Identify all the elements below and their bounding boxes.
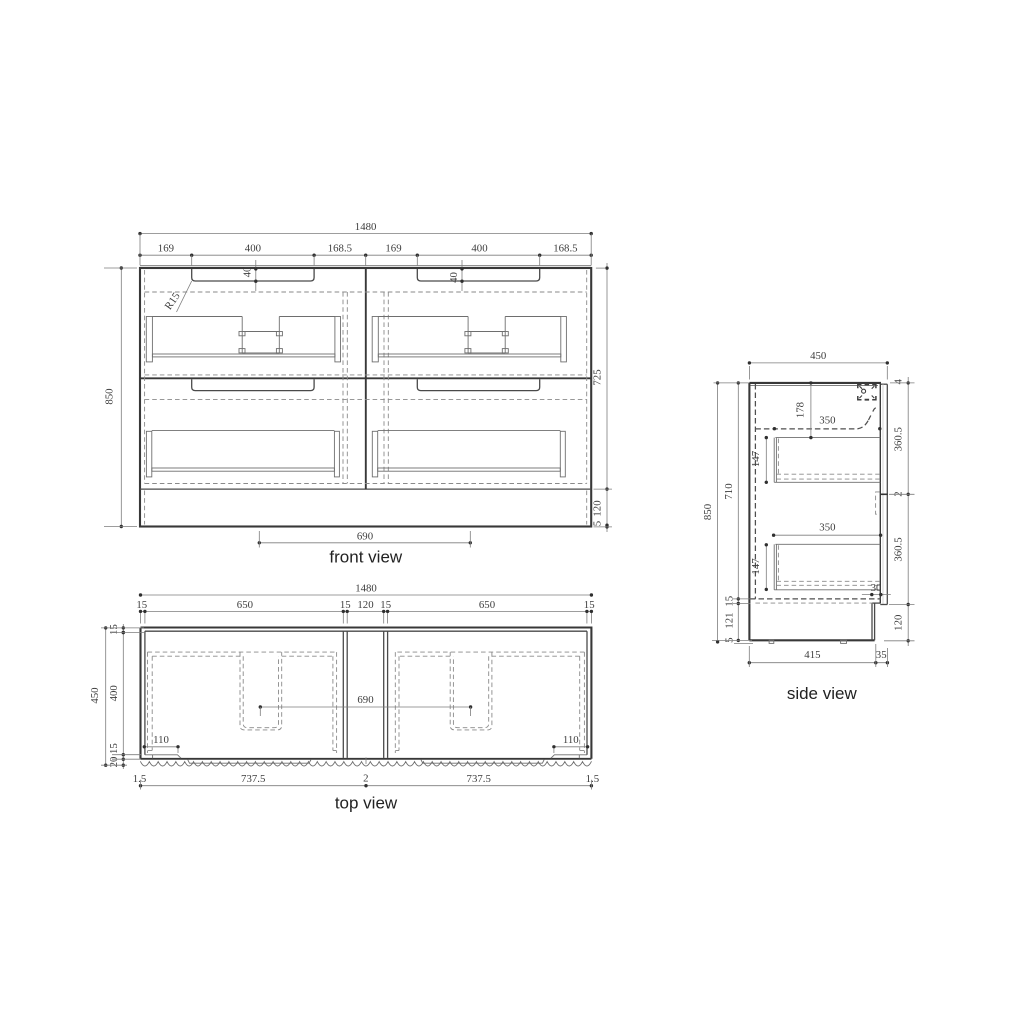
- svg-text:650: 650: [479, 599, 495, 611]
- svg-text:15: 15: [108, 624, 120, 635]
- svg-text:350: 350: [819, 522, 835, 534]
- svg-text:120: 120: [893, 615, 905, 631]
- svg-text:1480: 1480: [355, 582, 377, 594]
- svg-text:169: 169: [385, 243, 401, 255]
- svg-text:15: 15: [724, 596, 736, 607]
- svg-text:35: 35: [876, 649, 887, 661]
- svg-text:169: 169: [158, 243, 174, 255]
- svg-text:15: 15: [380, 599, 391, 611]
- svg-text:15: 15: [136, 599, 147, 611]
- svg-text:737.5: 737.5: [241, 773, 265, 785]
- svg-text:850: 850: [702, 504, 714, 520]
- svg-text:650: 650: [237, 599, 253, 611]
- svg-text:121: 121: [724, 612, 736, 628]
- svg-text:1.5: 1.5: [133, 773, 147, 785]
- svg-text:168.5: 168.5: [328, 243, 352, 255]
- svg-text:20: 20: [108, 757, 120, 768]
- svg-text:690: 690: [357, 531, 373, 543]
- svg-text:15: 15: [584, 599, 595, 611]
- svg-text:400: 400: [108, 685, 120, 701]
- svg-text:15: 15: [108, 743, 120, 754]
- svg-text:110: 110: [153, 734, 169, 746]
- svg-text:15: 15: [340, 599, 351, 611]
- svg-text:350: 350: [819, 415, 835, 427]
- svg-text:178: 178: [795, 402, 807, 418]
- svg-text:40: 40: [242, 267, 254, 278]
- svg-text:450: 450: [89, 687, 101, 703]
- svg-text:168.5: 168.5: [553, 243, 577, 255]
- svg-text:360.5: 360.5: [893, 427, 905, 451]
- svg-text:400: 400: [471, 243, 487, 255]
- svg-text:1480: 1480: [355, 221, 377, 233]
- svg-text:40: 40: [448, 272, 460, 283]
- svg-text:30: 30: [871, 582, 882, 594]
- svg-text:737.5: 737.5: [467, 773, 491, 785]
- svg-text:side view: side view: [787, 684, 858, 703]
- svg-text:147: 147: [750, 558, 762, 575]
- svg-text:120: 120: [357, 599, 373, 611]
- svg-text:400: 400: [245, 243, 261, 255]
- svg-text:110: 110: [563, 734, 579, 746]
- svg-text:147: 147: [750, 450, 762, 467]
- svg-text:top view: top view: [335, 794, 398, 813]
- svg-text:710: 710: [723, 483, 735, 499]
- svg-text:415: 415: [804, 649, 820, 661]
- svg-text:850: 850: [104, 388, 116, 404]
- svg-text:360.5: 360.5: [893, 537, 905, 561]
- svg-text:2: 2: [363, 773, 368, 785]
- svg-text:725: 725: [591, 369, 603, 385]
- svg-text:front view: front view: [329, 548, 402, 567]
- svg-text:4: 4: [893, 379, 905, 385]
- svg-text:690: 690: [357, 694, 373, 706]
- svg-text:5: 5: [591, 521, 603, 526]
- svg-text:450: 450: [810, 350, 826, 362]
- svg-text:120: 120: [591, 500, 603, 516]
- svg-text:1.5: 1.5: [586, 773, 600, 785]
